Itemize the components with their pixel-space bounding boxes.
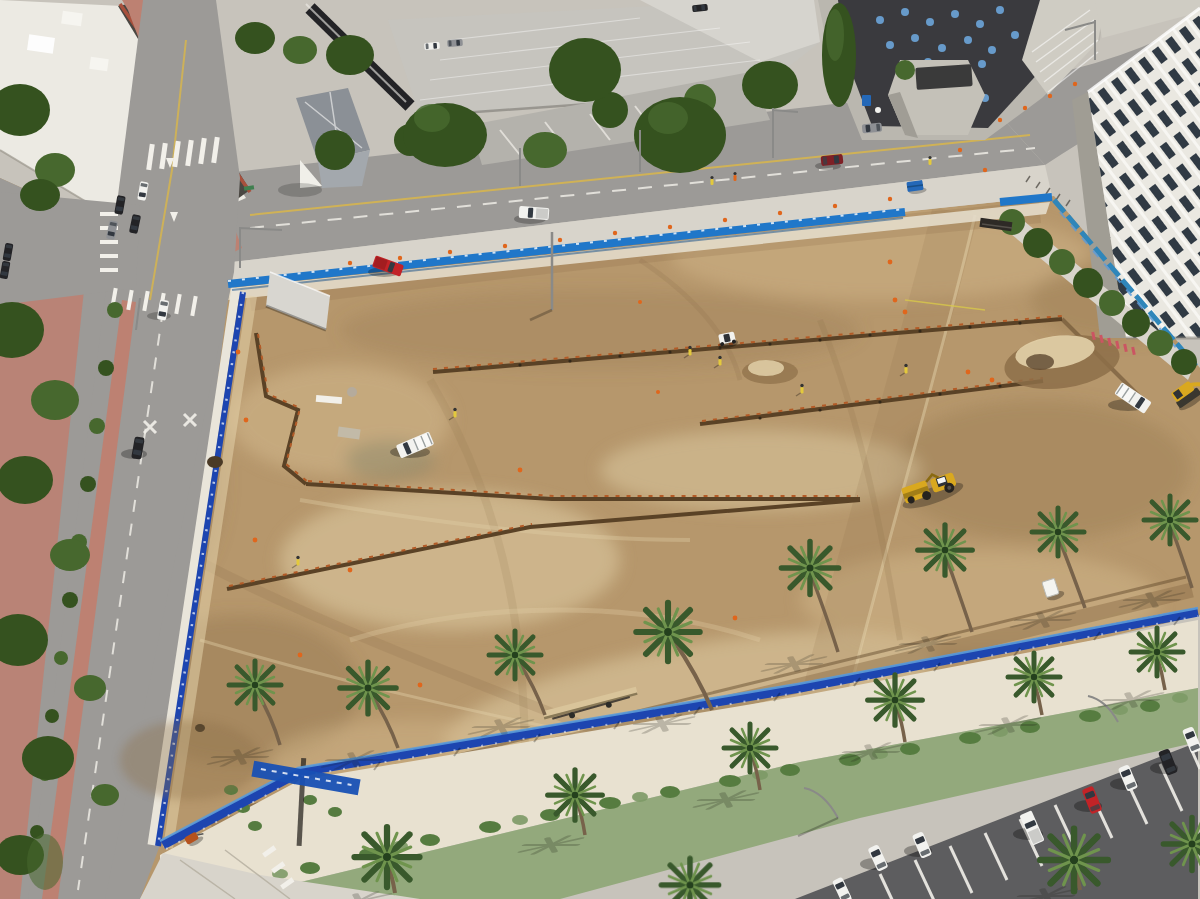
white-pickup-north-street <box>519 206 550 220</box>
excavation-hole <box>207 456 223 468</box>
aerial-photo-canvas <box>0 0 1200 899</box>
aerial-photo-construction-site <box>0 0 1200 899</box>
